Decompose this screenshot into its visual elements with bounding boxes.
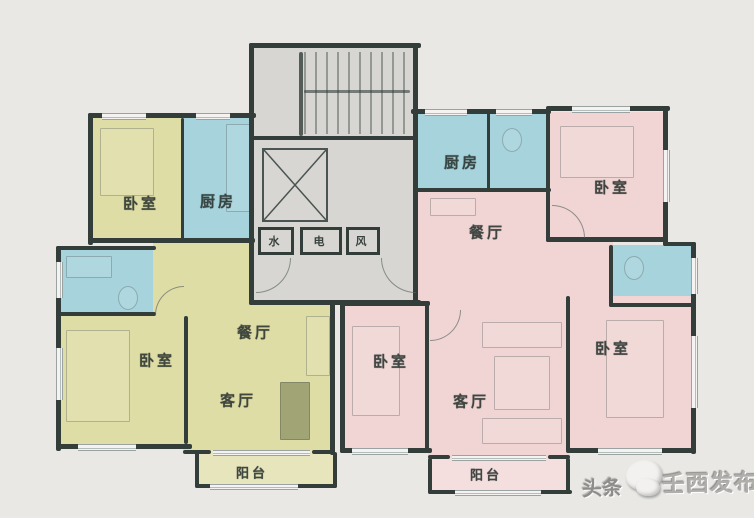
label-right-bedroom-right: 卧室 — [595, 338, 631, 359]
watermark-publisher-text: 壬西发布 — [662, 463, 754, 499]
furniture-toilet — [502, 128, 522, 152]
furniture-bed — [66, 330, 130, 422]
wall-segment — [88, 238, 255, 243]
furniture-tv-cabinet — [280, 382, 310, 440]
furniture-sofa — [482, 322, 562, 348]
wall-segment — [333, 452, 337, 488]
wall-segment — [330, 303, 335, 455]
furniture-bathtub — [66, 256, 112, 278]
wall-segment — [566, 458, 570, 494]
label-left-dining: 餐厅 — [237, 322, 273, 343]
vent-shaft-label: 风 — [356, 233, 367, 249]
label-right-kitchen: 厨房 — [444, 152, 480, 173]
staircase-icon — [304, 52, 410, 134]
furniture-dining-cabinet — [430, 198, 476, 216]
label-left-balcony: 阳台 — [236, 463, 268, 482]
wall-segment — [252, 136, 415, 140]
wall-segment — [249, 43, 254, 305]
wall-segment — [340, 301, 430, 306]
window — [691, 258, 698, 294]
wall-segment — [56, 246, 156, 250]
water-shaft-label: 水 — [269, 233, 280, 249]
window — [663, 150, 670, 202]
stair-rail — [304, 90, 410, 93]
window — [496, 109, 532, 116]
label-right-bedroom-top: 卧室 — [594, 177, 630, 198]
wall-segment — [249, 43, 421, 48]
watermark-brand-text: 头条 — [582, 471, 623, 501]
label-right-balcony: 阳台 — [470, 465, 502, 484]
furniture-toilet — [624, 256, 644, 280]
wall-segment — [299, 52, 303, 136]
wall-segment — [56, 312, 156, 316]
furniture-sofa — [306, 316, 330, 376]
wall-segment — [184, 316, 188, 444]
wall-segment — [428, 458, 432, 494]
wall-segment — [609, 245, 613, 307]
label-left-living: 客厅 — [220, 390, 256, 411]
wall-segment — [312, 450, 335, 454]
window — [102, 113, 146, 120]
wall-segment — [425, 301, 429, 451]
furniture-sofa — [482, 418, 562, 444]
furniture-coffee-table — [494, 356, 550, 410]
balcony-door-window — [452, 455, 546, 461]
floor-plan-canvas: 水 电 风 — [0, 0, 754, 518]
label-right-bedroom-middle: 卧室 — [373, 351, 409, 372]
furniture-bed — [606, 320, 664, 418]
wall-segment — [546, 110, 550, 242]
label-right-living: 客厅 — [453, 391, 489, 412]
wall-segment — [340, 301, 345, 453]
balcony-door-window — [213, 450, 310, 456]
label-left-bedroom-main: 卧室 — [139, 350, 175, 371]
window — [56, 348, 63, 400]
watermark-logo-icon — [636, 478, 660, 496]
wall-segment — [88, 113, 93, 245]
room-right-bathroom-top — [490, 114, 550, 192]
furniture-toilet — [118, 286, 138, 310]
label-left-kitchen: 厨房 — [200, 191, 236, 212]
elevator-icon — [262, 148, 328, 222]
window — [572, 106, 630, 113]
watermark: 头条 壬西发布 — [578, 450, 754, 516]
label-left-bedroom-top: 卧室 — [123, 193, 159, 214]
furniture-bed — [560, 126, 634, 178]
wall-segment — [181, 118, 184, 240]
electric-shaft-label: 电 — [314, 233, 325, 249]
wall-segment — [487, 112, 490, 192]
wall-segment — [566, 296, 570, 452]
window — [691, 336, 698, 408]
window — [352, 448, 408, 455]
wall-segment — [609, 303, 695, 307]
wall-segment — [195, 452, 199, 488]
label-right-dining: 餐厅 — [469, 222, 505, 243]
window — [425, 109, 467, 116]
window — [78, 444, 136, 451]
furniture-bed — [100, 128, 154, 196]
wall-segment — [413, 188, 551, 192]
window — [56, 262, 63, 298]
window — [210, 484, 298, 490]
window — [455, 490, 541, 496]
window — [196, 113, 230, 120]
